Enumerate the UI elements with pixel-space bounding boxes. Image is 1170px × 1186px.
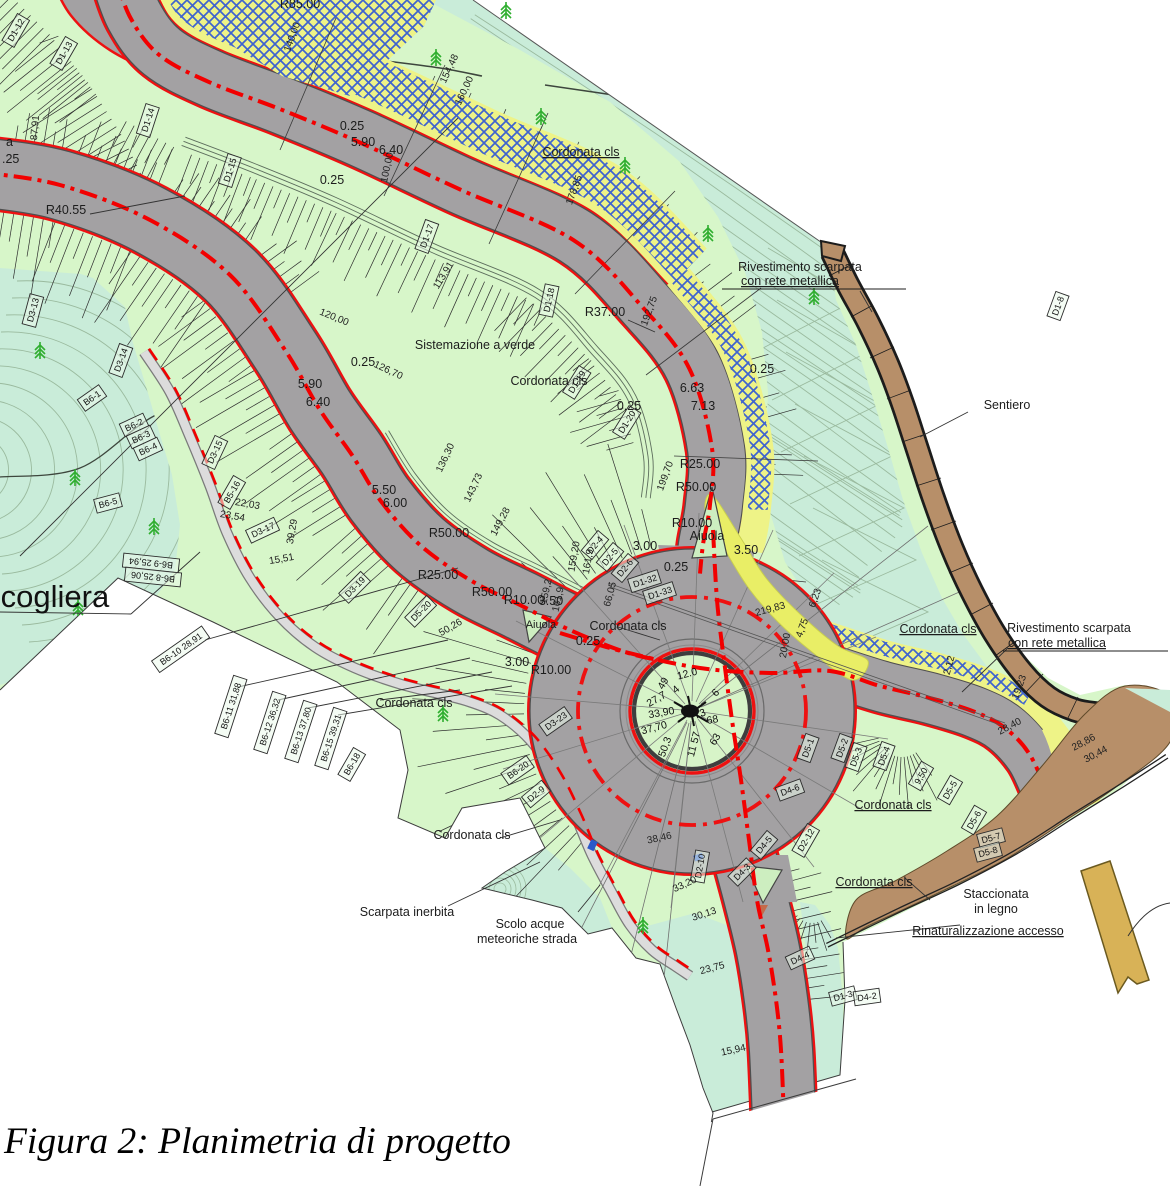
svg-text:Rivestimento scarpata: Rivestimento scarpata xyxy=(1007,621,1131,635)
svg-text:0.25: 0.25 xyxy=(664,560,688,574)
svg-text:0.25: 0.25 xyxy=(351,355,375,369)
svg-text:Aiuola: Aiuola xyxy=(526,619,557,631)
svg-text:con rete metallica: con rete metallica xyxy=(741,274,839,288)
svg-text:Rinaturalizzazione accesso: Rinaturalizzazione accesso xyxy=(912,924,1064,938)
svg-text:R10.00: R10.00 xyxy=(672,516,712,530)
svg-text:Rivestimento scarpata: Rivestimento scarpata xyxy=(738,260,862,274)
svg-text:3.00: 3.00 xyxy=(505,655,529,669)
svg-text:con rete metallica: con rete metallica xyxy=(1008,636,1106,650)
svg-text:6.40: 6.40 xyxy=(379,143,403,157)
svg-text:7.13: 7.13 xyxy=(691,399,715,413)
svg-text:R25.00: R25.00 xyxy=(680,457,720,471)
svg-text:Cordonata cls: Cordonata cls xyxy=(433,828,510,842)
svg-text:87,91: 87,91 xyxy=(29,114,42,140)
svg-text:6.00: 6.00 xyxy=(383,496,407,510)
svg-text:Sentiero: Sentiero xyxy=(984,398,1031,412)
svg-text:in legno: in legno xyxy=(974,902,1018,916)
svg-text:R10.00: R10.00 xyxy=(531,663,571,677)
svg-text:a: a xyxy=(6,135,13,149)
svg-text:0.25: 0.25 xyxy=(750,362,774,376)
svg-text:Cordonata cls: Cordonata cls xyxy=(542,145,619,159)
svg-text:6.40: 6.40 xyxy=(306,395,330,409)
svg-text:3.00: 3.00 xyxy=(633,539,657,553)
svg-text:Cordonata cls: Cordonata cls xyxy=(589,619,666,633)
svg-text:meteoriche strada: meteoriche strada xyxy=(477,932,577,946)
svg-text:Sistemazione a verde: Sistemazione a verde xyxy=(415,338,535,352)
svg-text:Scarpata inerbita: Scarpata inerbita xyxy=(360,905,455,919)
svg-text:Staccionata: Staccionata xyxy=(963,887,1028,901)
svg-text:R25.00: R25.00 xyxy=(418,568,458,582)
svg-text:R50.00: R50.00 xyxy=(676,480,716,494)
svg-text:5.90: 5.90 xyxy=(351,135,375,149)
svg-text:68: 68 xyxy=(706,713,720,727)
svg-text:Scogliera: Scogliera xyxy=(0,579,110,614)
svg-text:Cordonata cls: Cordonata cls xyxy=(835,875,912,889)
svg-text:Cordonata cls: Cordonata cls xyxy=(375,696,452,710)
svg-text:Cordonata cls: Cordonata cls xyxy=(510,374,587,388)
svg-text:Aiuola: Aiuola xyxy=(690,529,725,543)
svg-text:R85.00: R85.00 xyxy=(280,0,320,11)
svg-text:0.25: 0.25 xyxy=(340,119,364,133)
svg-text:6.63: 6.63 xyxy=(680,381,704,395)
svg-text:0.25: 0.25 xyxy=(617,399,641,413)
svg-text:0.25: 0.25 xyxy=(576,634,600,648)
svg-text:5.90: 5.90 xyxy=(298,377,322,391)
svg-text:.25: .25 xyxy=(2,152,19,166)
svg-text:3.50: 3.50 xyxy=(539,594,563,608)
svg-text:R37.00: R37.00 xyxy=(585,305,625,319)
svg-text:5.50: 5.50 xyxy=(372,483,396,497)
svg-text:R50.00: R50.00 xyxy=(429,526,469,540)
svg-text:Scolo acque: Scolo acque xyxy=(496,917,565,931)
svg-text:Figura 2: Planimetria di proge: Figura 2: Planimetria di progetto xyxy=(3,1121,511,1162)
svg-text:0.25: 0.25 xyxy=(320,173,344,187)
svg-text:R40.55: R40.55 xyxy=(46,203,86,217)
svg-text:3.50: 3.50 xyxy=(734,543,758,557)
svg-text:Cordonata cls: Cordonata cls xyxy=(854,798,931,812)
svg-text:Cordonata cls: Cordonata cls xyxy=(899,622,976,636)
